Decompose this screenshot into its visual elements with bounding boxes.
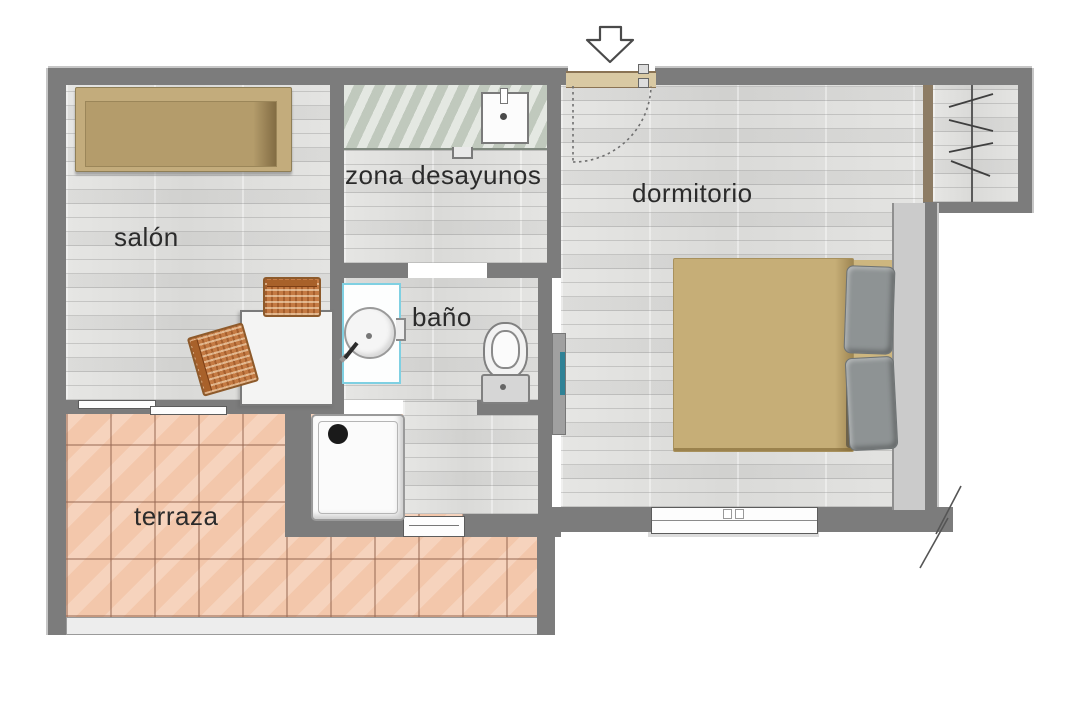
bedroom-label: dormitorio [632, 178, 753, 209]
floor-plan: salón zona desayunos dormitorio baño ter… [0, 0, 1067, 712]
breakfast-area-label: zona desayunos [345, 160, 541, 191]
door-swing-arc-icon [573, 86, 651, 162]
wall-break-marks-icon [920, 486, 961, 568]
bathroom-label: baño [412, 302, 472, 333]
terrace-label: terraza [134, 501, 218, 532]
living-room-label: salón [114, 222, 179, 253]
basin-faucet-icon [341, 343, 357, 361]
closet-rail-marks-icon [949, 94, 993, 176]
annotation-layer [0, 0, 1067, 712]
entry-arrow-icon [587, 27, 633, 62]
